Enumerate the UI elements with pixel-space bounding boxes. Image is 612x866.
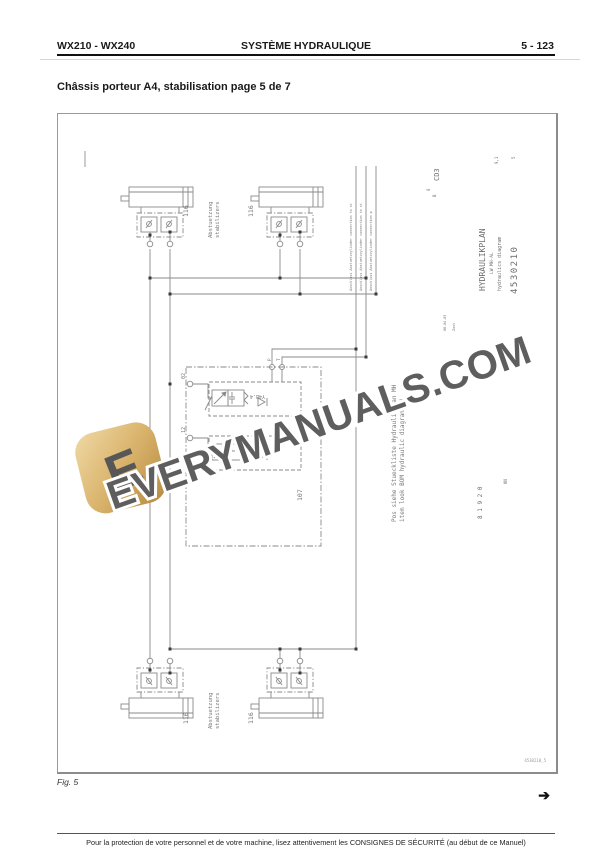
valve-label-top: Y4B.4 xyxy=(250,393,265,399)
header-rule-light xyxy=(40,59,580,60)
manual-page: WX210 - WX240 SYSTÈME HYDRAULIQUE 5 - 12… xyxy=(0,0,612,866)
header-section-title: SYSTÈME HYDRAULIQUE xyxy=(0,40,612,52)
title-block-code: CD3 xyxy=(433,168,441,181)
title-block-date: 08.04.03 xyxy=(443,315,447,331)
diagram-frame: 116 116 116 116 Abstuetzung stabilizers … xyxy=(57,113,558,774)
cylinder-label-116-bl: 116 xyxy=(182,712,190,724)
connector-note-1: Anschluss Abstuetzzylinder connection to… xyxy=(349,203,353,291)
title-block-sheet: 5 xyxy=(511,156,516,159)
watermark-text: EVERYMANUALS.COM xyxy=(101,328,537,519)
next-page-arrow-icon[interactable]: ➔ xyxy=(538,787,550,804)
cylinder-label-116-tl: 116 xyxy=(182,205,190,217)
stabilizer-cylinder-top-right xyxy=(251,187,323,247)
title-block-subtitle2: hydraulics diagram xyxy=(497,237,503,291)
title-block-mark0: 0 xyxy=(426,188,431,191)
title-block-title: HYDRAULIKPLAN xyxy=(478,228,487,291)
title-block-number: 4530210 xyxy=(510,246,520,294)
title-block-rev: 9,1 xyxy=(494,156,499,164)
port-label-12: 12 xyxy=(181,427,187,433)
title-block-zust: Zust xyxy=(452,323,456,331)
port-label-02: 02 xyxy=(181,373,187,379)
stabilizer-note-top-en: stabilizers xyxy=(215,202,221,238)
title-block-serial: 8 1 9 2 0 xyxy=(477,486,484,519)
footer-rule xyxy=(57,833,555,834)
port-label-p: p xyxy=(267,358,272,361)
cylinder-label-116-tr: 116 xyxy=(247,205,255,217)
figure-label: Fig. 5 xyxy=(57,777,78,787)
stabilizer-note-bottom-en: stabilizers xyxy=(215,693,221,729)
cylinder-label-116-br: 116 xyxy=(247,712,255,724)
corner-reference: 4530210_5 xyxy=(524,758,546,763)
title-block-subtitle: LW MH-AL xyxy=(489,252,495,274)
connector-note-3: Anschluss Abstuetzzylinder connection p xyxy=(369,211,373,291)
stabilizer-note-bottom-de: Abstuetzung xyxy=(208,693,214,729)
title-block-kn: KN xyxy=(503,479,508,484)
port-label-t: T xyxy=(276,358,282,361)
header-page-number: 5 - 123 xyxy=(521,40,554,52)
hydraulic-diagram: 116 116 116 116 Abstuetzung stabilizers … xyxy=(58,114,556,772)
connector-note-2: Anschluss Abstuetzzylinder connection to… xyxy=(359,203,363,291)
title-block-markb: B xyxy=(432,194,437,197)
page-title: Châssis porteur A4, stabilisation page 5… xyxy=(57,81,291,93)
stabilizer-cylinder-bottom-left xyxy=(121,658,193,718)
footer-safety-note: Pour la protection de votre personnel et… xyxy=(0,838,612,847)
stabilizer-cylinder-bottom-right xyxy=(251,658,323,718)
block-ref-107: 107 xyxy=(296,489,304,501)
stabilizer-note-top-de: Abstuetzung xyxy=(208,202,214,238)
header-rule xyxy=(57,54,555,56)
